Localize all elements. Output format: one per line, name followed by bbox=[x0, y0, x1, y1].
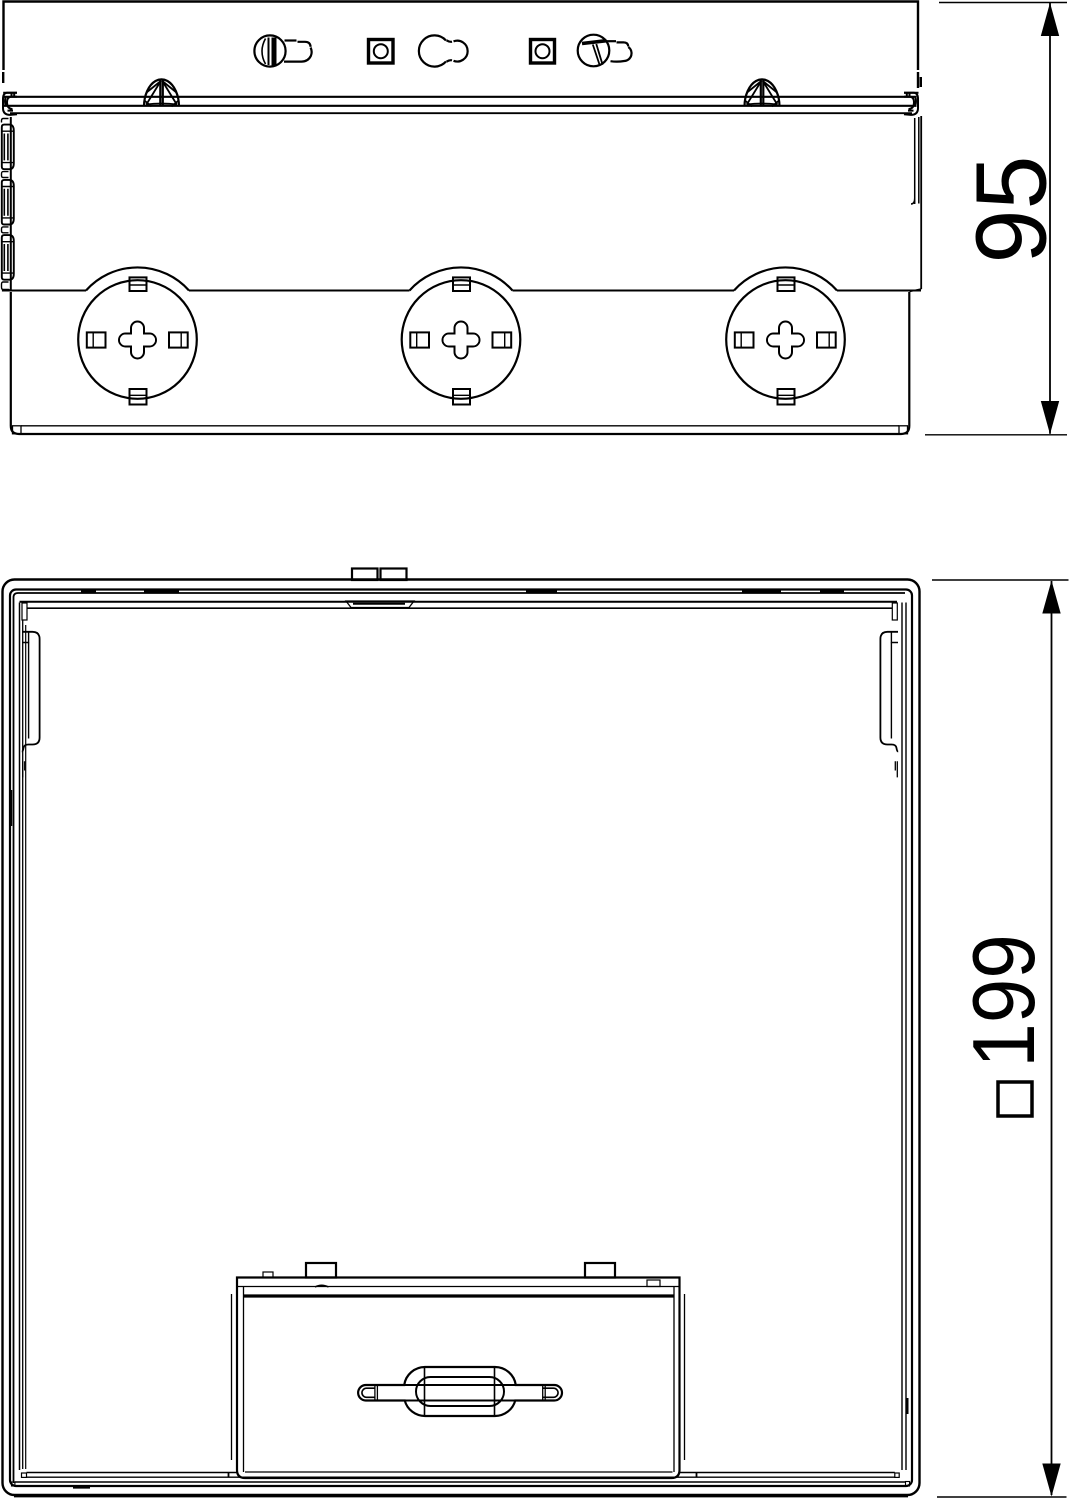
svg-text:95: 95 bbox=[955, 156, 1067, 264]
svg-text:199: 199 bbox=[955, 934, 1053, 1068]
